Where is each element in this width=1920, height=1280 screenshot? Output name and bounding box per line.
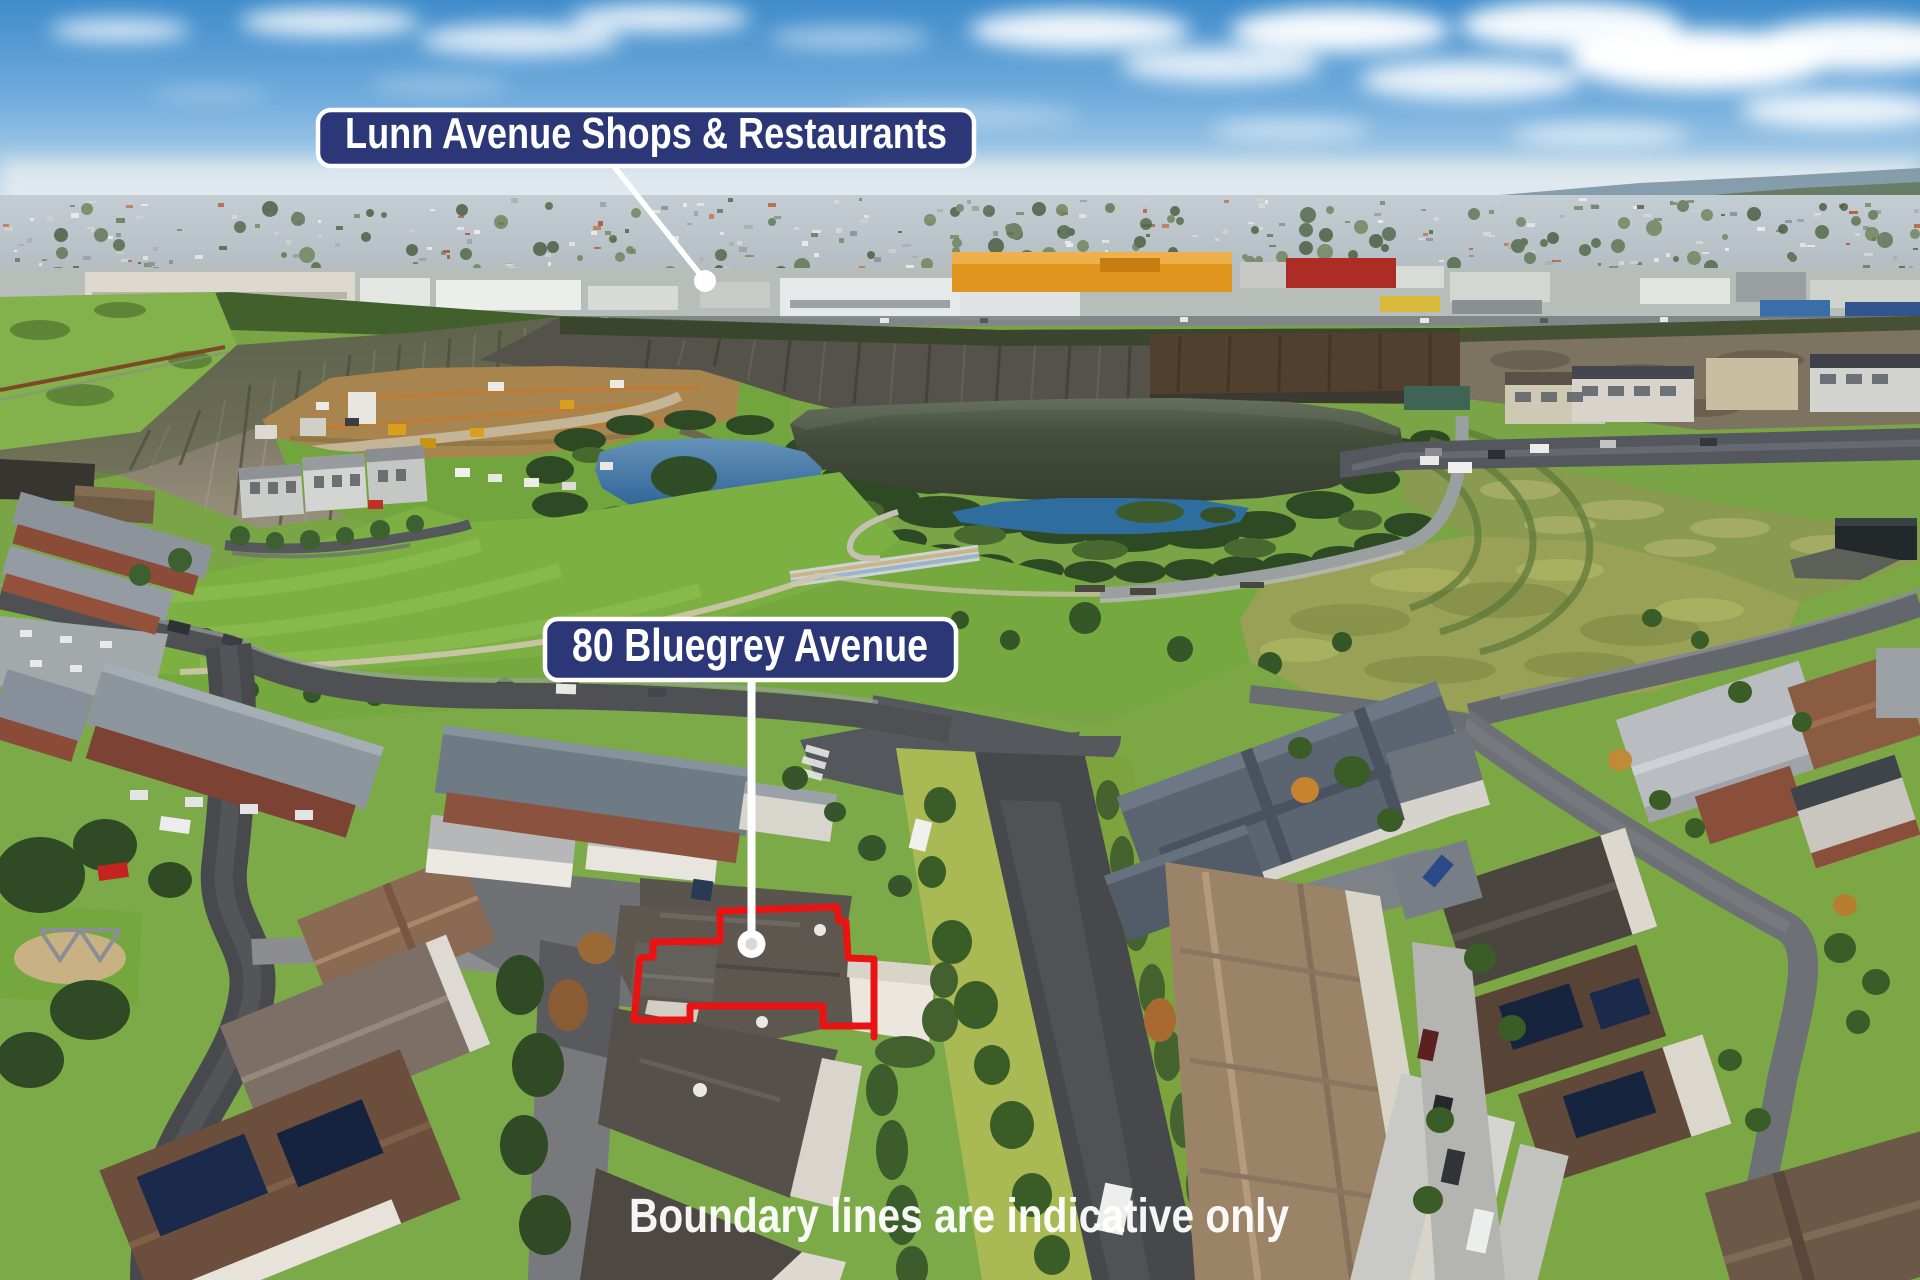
svg-text:Boundary lines are indicative: Boundary lines are indicative only	[629, 1190, 1289, 1243]
svg-text:80 Bluegrey Avenue: 80 Bluegrey Avenue	[572, 619, 928, 671]
svg-text:Lunn Avenue Shops & Restaurant: Lunn Avenue Shops & Restaurants	[345, 109, 947, 158]
